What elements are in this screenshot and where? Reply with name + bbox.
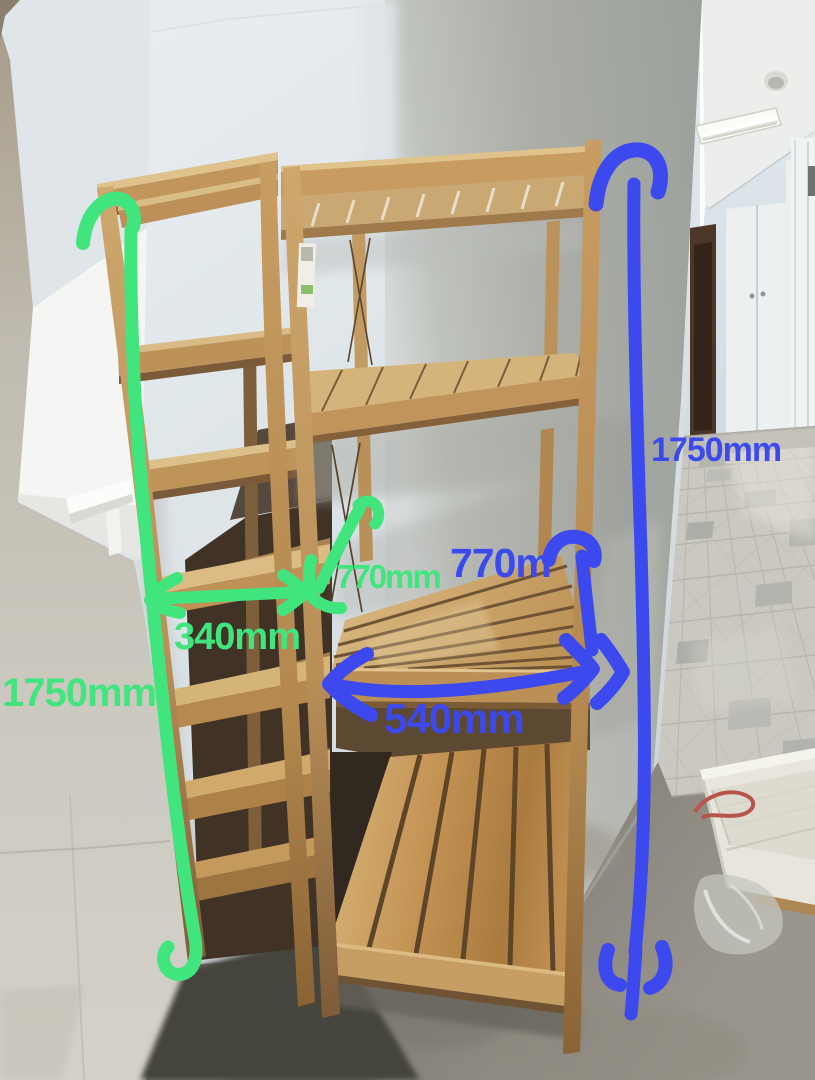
svg-text:340mm: 340mm [174,616,300,658]
svg-text:540mm: 540mm [384,695,524,742]
svg-text:1750mm: 1750mm [651,431,781,469]
svg-text:770m: 770m [450,540,551,586]
svg-text:770mm: 770mm [336,558,440,595]
svg-text:1750mm: 1750mm [2,671,156,715]
